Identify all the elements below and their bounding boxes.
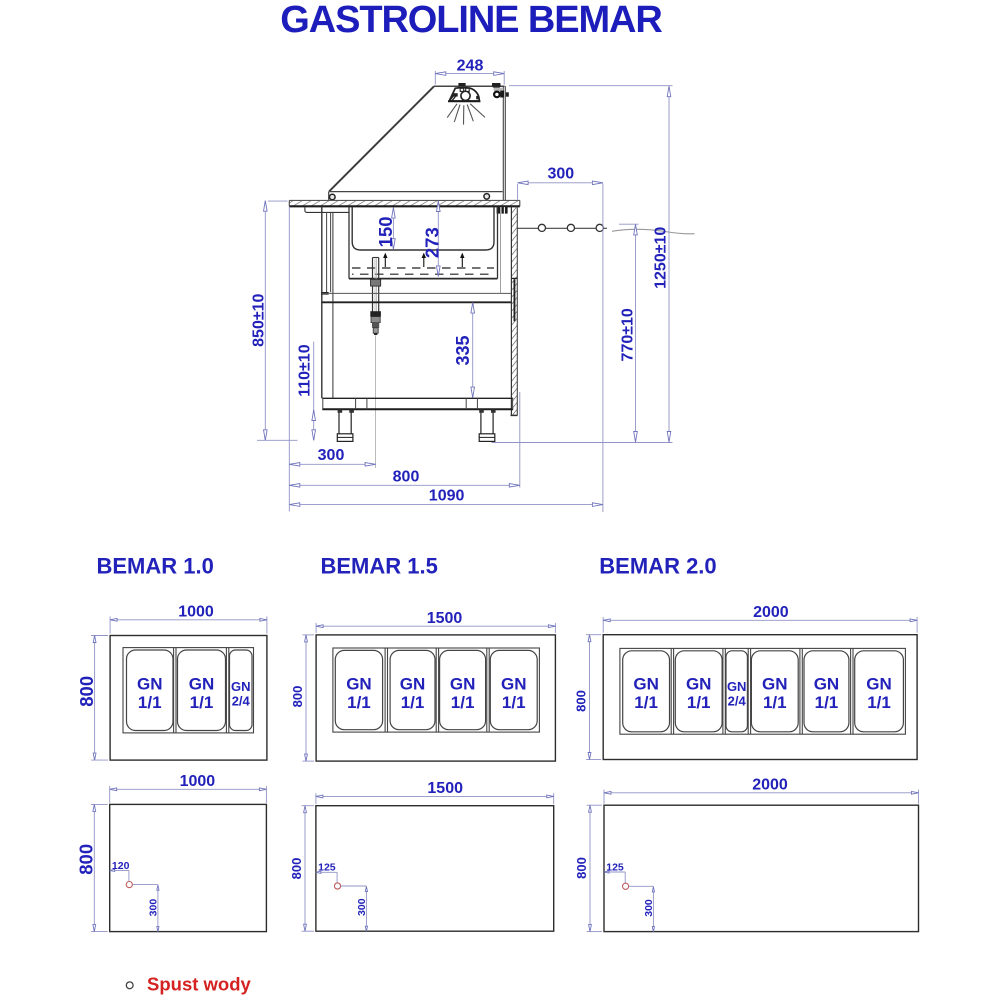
svg-text:2000: 2000 <box>752 776 788 793</box>
svg-text:800: 800 <box>393 468 420 485</box>
svg-text:300: 300 <box>318 447 345 464</box>
svg-text:GN: GN <box>633 675 659 694</box>
svg-text:Spust wody: Spust wody <box>147 973 252 994</box>
svg-text:GN: GN <box>189 675 215 694</box>
svg-text:GN: GN <box>501 675 527 694</box>
svg-text:GN: GN <box>346 675 372 694</box>
svg-text:GN: GN <box>137 675 163 694</box>
svg-text:2/4: 2/4 <box>232 694 251 709</box>
svg-text:300: 300 <box>356 898 368 916</box>
svg-text:1090: 1090 <box>429 488 465 505</box>
svg-text:300: 300 <box>147 899 159 917</box>
svg-text:1500: 1500 <box>427 610 463 627</box>
svg-text:800: 800 <box>76 676 97 707</box>
svg-text:1/1: 1/1 <box>687 693 711 712</box>
svg-text:800: 800 <box>75 844 96 875</box>
svg-text:GN: GN <box>866 675 892 694</box>
svg-text:1/1: 1/1 <box>451 693 475 712</box>
svg-text:1/1: 1/1 <box>763 693 787 712</box>
svg-text:1/1: 1/1 <box>401 693 425 712</box>
svg-text:110±10: 110±10 <box>297 344 314 396</box>
svg-text:1/1: 1/1 <box>867 693 891 712</box>
svg-text:BEMAR 1.5: BEMAR 1.5 <box>321 554 438 579</box>
svg-text:300: 300 <box>643 899 655 917</box>
svg-text:1250±10: 1250±10 <box>653 227 670 289</box>
svg-text:GN: GN <box>762 675 788 694</box>
svg-text:GN: GN <box>400 675 426 694</box>
svg-text:1/1: 1/1 <box>190 693 214 712</box>
svg-text:1/1: 1/1 <box>502 693 526 712</box>
svg-text:GN: GN <box>450 675 476 694</box>
svg-text:335: 335 <box>453 335 473 365</box>
svg-text:800: 800 <box>289 858 304 880</box>
svg-text:BEMAR 2.0: BEMAR 2.0 <box>599 554 716 579</box>
svg-text:850±10: 850±10 <box>250 293 267 346</box>
svg-text:800: 800 <box>290 686 305 708</box>
svg-text:GN: GN <box>814 675 840 694</box>
svg-text:GN: GN <box>231 679 251 694</box>
svg-text:150: 150 <box>375 216 396 247</box>
svg-text:GN: GN <box>727 679 747 694</box>
svg-text:1/1: 1/1 <box>138 693 162 712</box>
svg-text:GASTROLINE BEMAR: GASTROLINE BEMAR <box>280 0 662 41</box>
svg-text:125: 125 <box>318 862 336 874</box>
svg-text:300: 300 <box>547 166 574 183</box>
svg-text:1/1: 1/1 <box>347 693 371 712</box>
svg-text:2/4: 2/4 <box>728 694 747 709</box>
svg-text:BEMAR 1.0: BEMAR 1.0 <box>97 554 214 579</box>
svg-text:770±10: 770±10 <box>619 308 636 361</box>
svg-text:125: 125 <box>606 861 624 873</box>
svg-text:248: 248 <box>457 57 484 74</box>
svg-text:1000: 1000 <box>178 604 214 621</box>
svg-text:2000: 2000 <box>753 604 789 621</box>
svg-text:1500: 1500 <box>427 780 463 797</box>
svg-text:1/1: 1/1 <box>634 693 658 712</box>
svg-text:1000: 1000 <box>180 773 216 790</box>
svg-text:1/1: 1/1 <box>815 693 839 712</box>
svg-text:GN: GN <box>686 675 712 694</box>
svg-text:800: 800 <box>574 857 589 879</box>
svg-text:273: 273 <box>421 227 442 258</box>
svg-text:800: 800 <box>574 690 589 712</box>
svg-text:120: 120 <box>112 860 130 872</box>
